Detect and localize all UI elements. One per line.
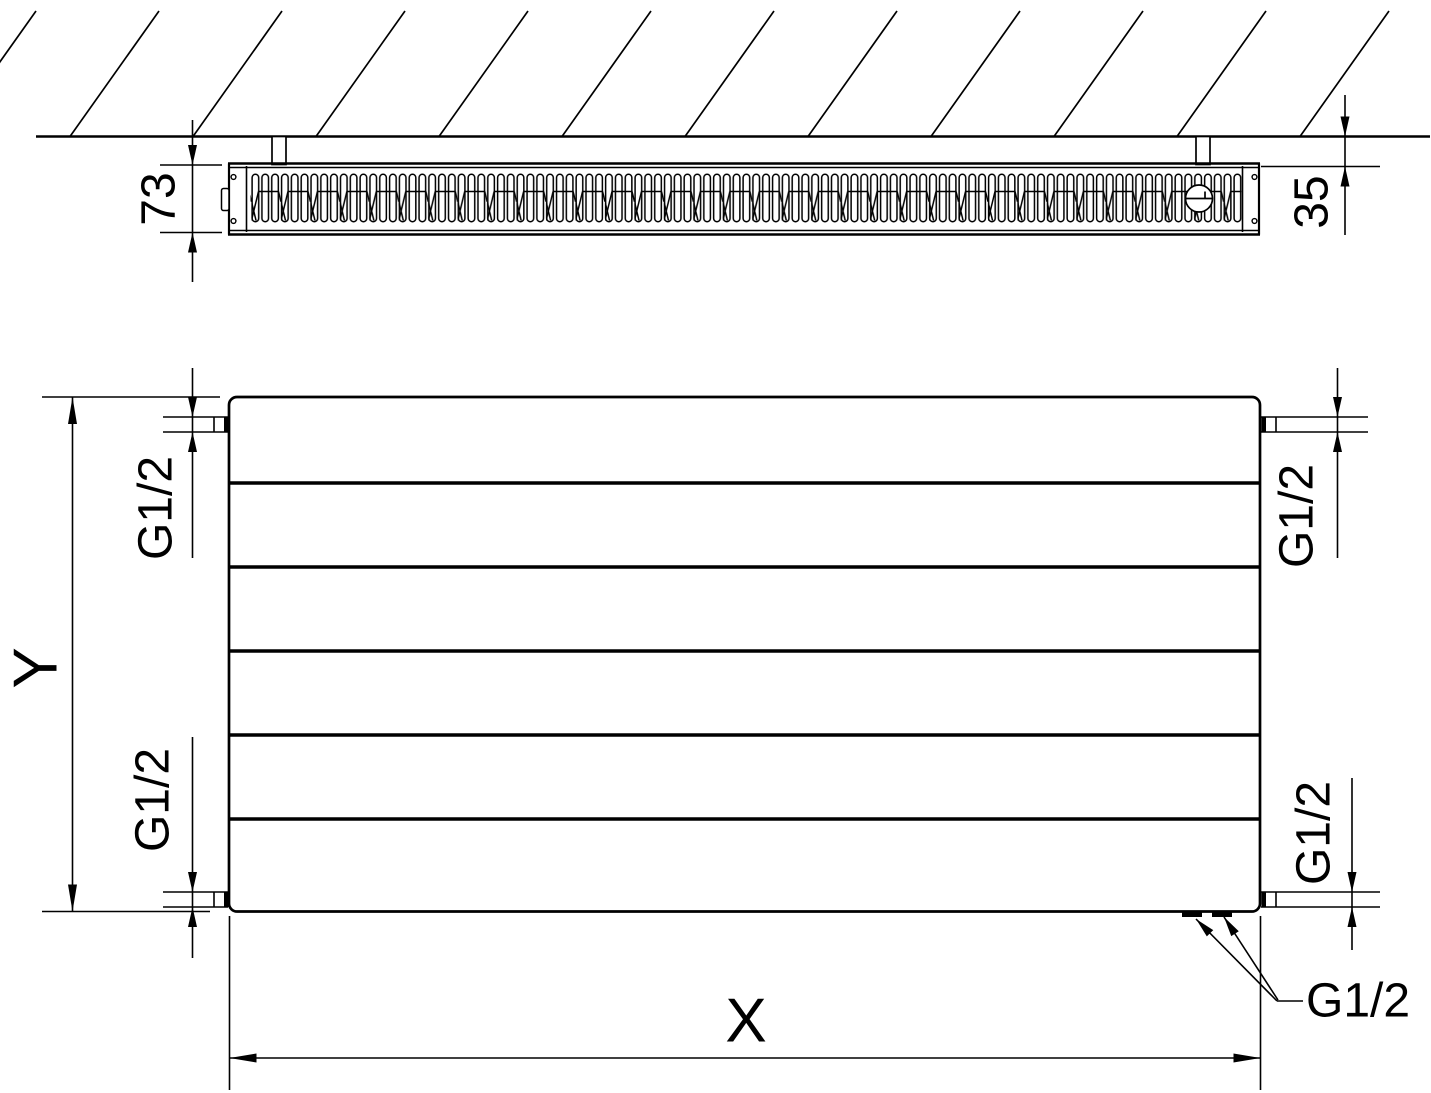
threaded-plug — [1186, 185, 1213, 212]
arrowhead-up-icon — [1333, 432, 1342, 452]
screw-icon — [1252, 219, 1257, 224]
arrowhead-up-icon — [68, 397, 77, 424]
leader-arrowhead-icon — [1220, 915, 1239, 937]
connection-size-label-bottom-right: G1/2 — [1288, 781, 1341, 885]
arrowhead-right-icon — [1234, 1054, 1261, 1063]
bottom-outlets — [1182, 911, 1303, 1001]
dim-wall-clearance-label: 35 — [1286, 175, 1339, 228]
arrowhead-up-icon — [188, 233, 197, 253]
wall-bracket-right — [1196, 137, 1210, 165]
radiator-technical-drawing: 73 35 — [0, 0, 1431, 1093]
dim-width-label: X — [725, 987, 766, 1056]
mounting-clip — [222, 189, 230, 211]
drawing-canvas: 73 35 — [0, 0, 1431, 1093]
screw-icon — [1252, 175, 1257, 180]
dimension-connection-bottom-right — [1348, 778, 1357, 950]
connection-size-label-bottom-left: G1/2 — [127, 748, 180, 852]
arrowhead-up-icon — [188, 432, 197, 452]
arrowhead-up-icon — [1348, 907, 1357, 927]
dim-height-label: Y — [2, 647, 71, 688]
arrowhead-down-icon — [1341, 117, 1350, 137]
connection-size-label-top-right: G1/2 — [1271, 464, 1324, 568]
dimension-connection-bottom-left — [188, 737, 197, 958]
dimension-connection-top-right — [1333, 368, 1342, 558]
arrowhead-down-icon — [188, 397, 197, 417]
connection-size-label-top-left: G1/2 — [130, 456, 183, 560]
radiator-top-view-body — [222, 164, 1261, 235]
wall-hatching — [0, 11, 1389, 137]
connection-size-label-bottom-outlets: G1/2 — [1306, 975, 1410, 1028]
arrowhead-down-icon — [188, 145, 197, 165]
wall-bracket-left — [272, 137, 286, 165]
arrowhead-down-icon — [68, 885, 77, 912]
front-view: G1/2 G1/2 G1/2 G1/2 — [2, 368, 1411, 1090]
arrowhead-up-icon — [188, 907, 197, 927]
arrowhead-down-icon — [1348, 872, 1357, 892]
radiator-front-panel — [229, 397, 1260, 912]
screw-icon — [231, 175, 236, 180]
arrowhead-left-icon — [230, 1054, 257, 1063]
screw-icon — [231, 219, 236, 224]
arrowhead-down-icon — [1333, 397, 1342, 417]
top-view: 73 35 — [0, 11, 1430, 282]
arrowhead-up-icon — [1341, 167, 1350, 187]
convector-fins-folds — [251, 174, 1242, 223]
dim-depth-label: 73 — [133, 172, 186, 225]
arrowhead-down-icon — [188, 872, 197, 892]
